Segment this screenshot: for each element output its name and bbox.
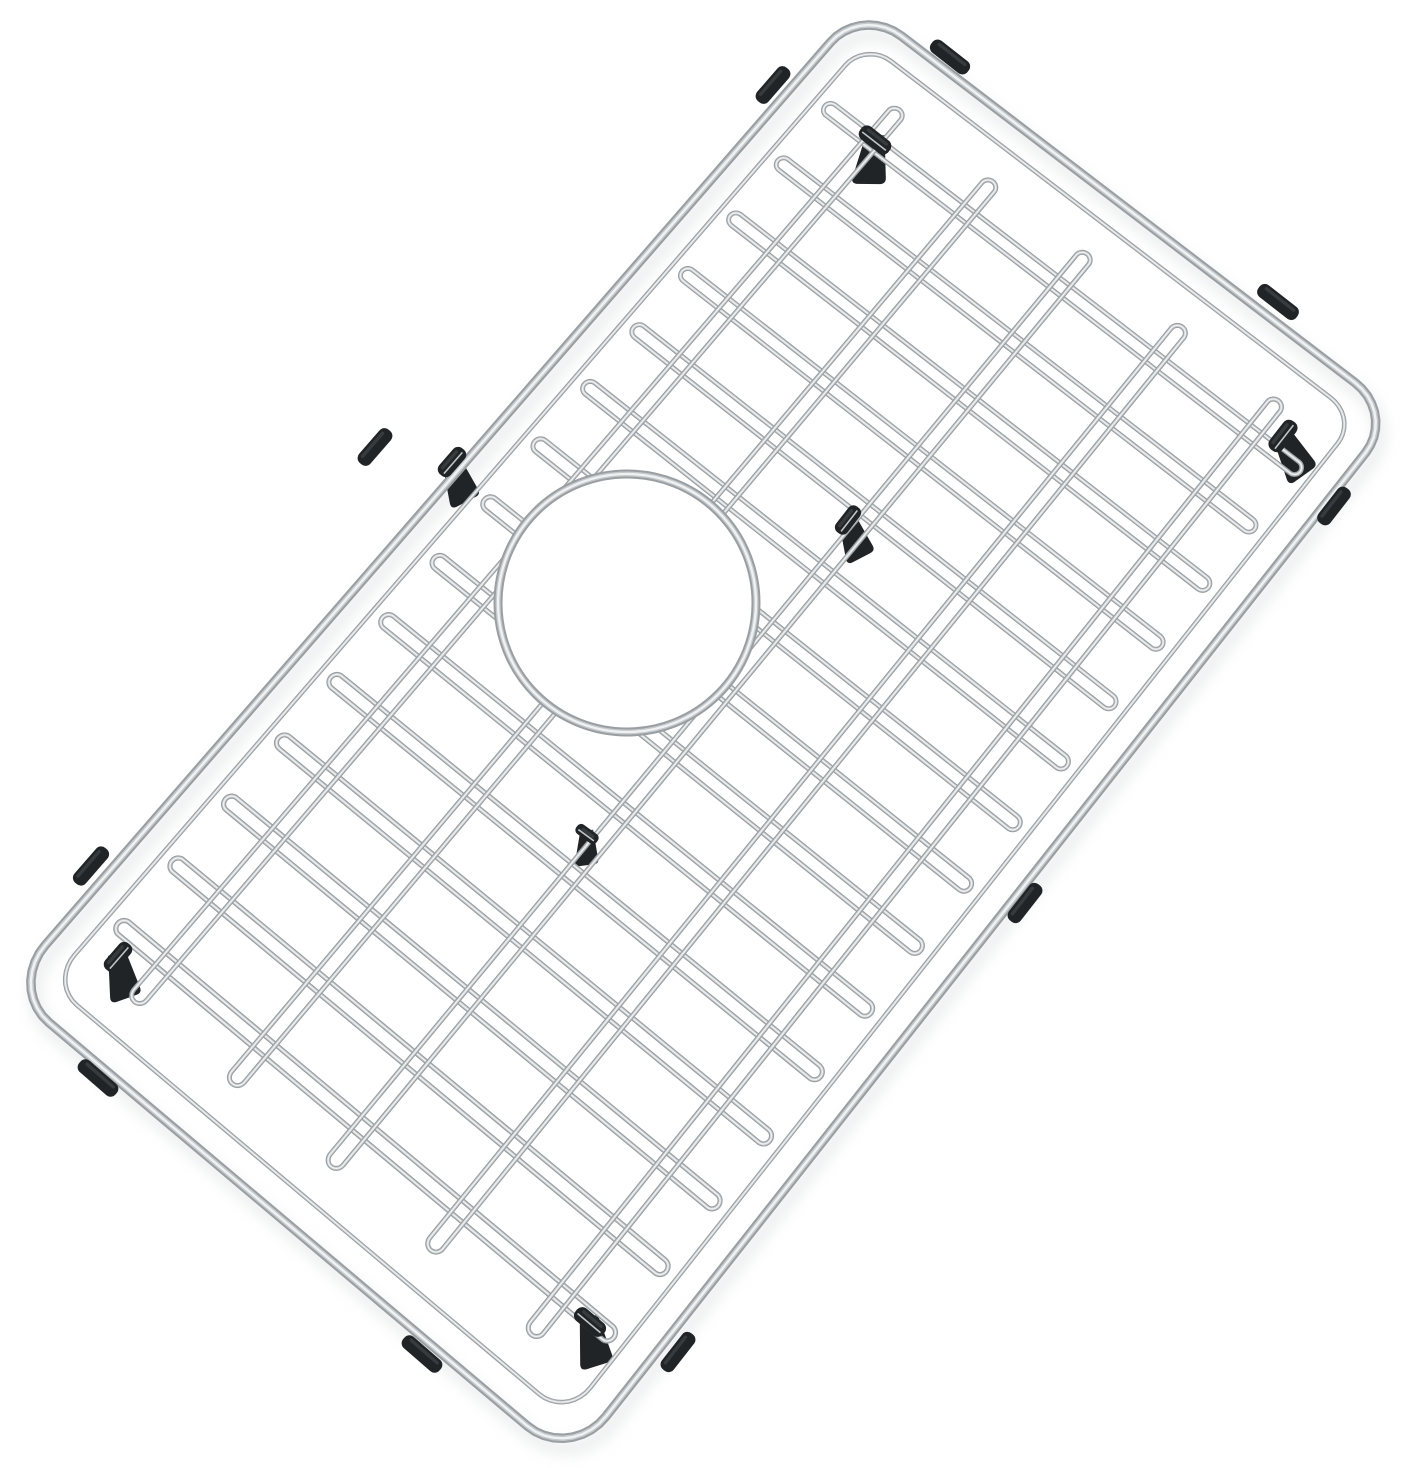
- product-photo: [0, 0, 1405, 1468]
- drain-opening: [498, 474, 756, 732]
- rubber-bumper: [355, 425, 395, 468]
- sink-grid-image: [0, 0, 1405, 1468]
